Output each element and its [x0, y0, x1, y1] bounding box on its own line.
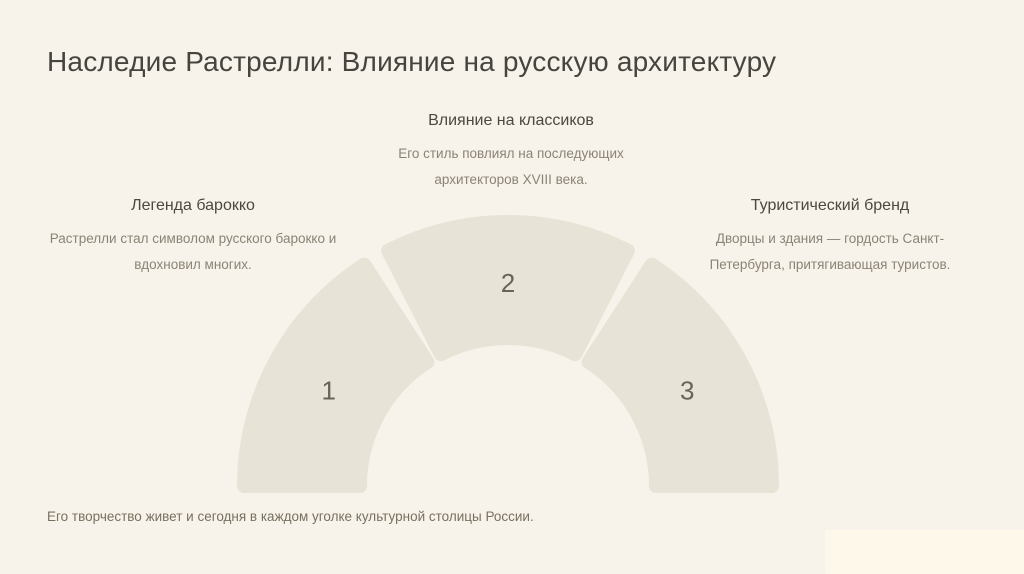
segment-number-1: 1 — [322, 376, 336, 406]
segment-number-2: 2 — [501, 268, 515, 298]
presentation-slide: { "slide": { "title": "Наследие Растрелл… — [0, 0, 1024, 574]
semicircle-diagram: 123 — [0, 0, 1024, 574]
watermark-area — [825, 530, 1024, 574]
segment-number-3: 3 — [680, 376, 694, 406]
footer-note: Его творчество живет и сегодня в каждом … — [47, 509, 534, 524]
